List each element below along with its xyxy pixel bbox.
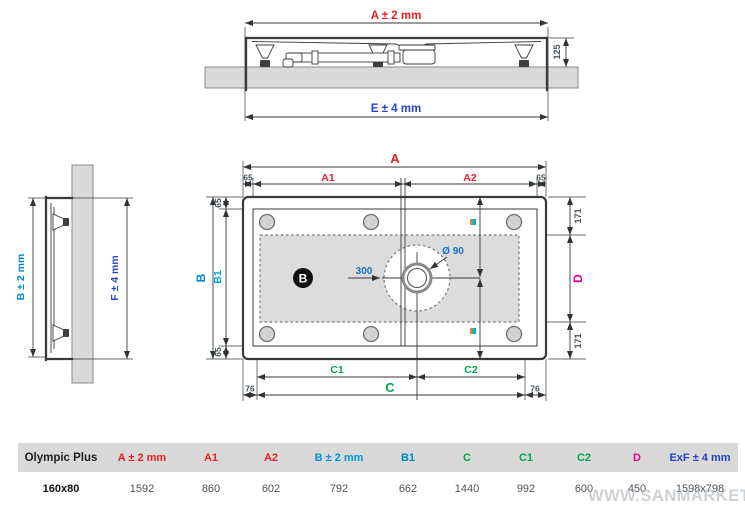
cell-b-value: 792 bbox=[300, 472, 378, 505]
plan-edge-171-bottom: 171 bbox=[573, 333, 583, 348]
side-dim-f-label: F ± 4 mm bbox=[109, 255, 121, 300]
elevation-dim-e-label: E ± 4 mm bbox=[371, 103, 421, 115]
plan-edge-65-left-bottom: 65 bbox=[213, 347, 223, 357]
drain-offset-label: 300 bbox=[356, 266, 373, 277]
cell-c1-value: 992 bbox=[496, 472, 556, 505]
plan-dim-c2-label: C2 bbox=[464, 364, 478, 376]
header-cell-product: Olympic Plus bbox=[18, 443, 104, 472]
header-cell-a: A ± 2 mm bbox=[104, 443, 180, 472]
elevation-view: A ± 2 mm 125 E ± 4 mm bbox=[205, 10, 578, 121]
foot-circle bbox=[364, 327, 379, 342]
header-cell-b: B ± 2 mm bbox=[300, 443, 378, 472]
plan-edge-65-top-left: 65 bbox=[243, 173, 253, 183]
plan-dim-d-label: D bbox=[571, 274, 585, 283]
drain-trap bbox=[399, 45, 435, 64]
plan-dim-b-label: B bbox=[194, 273, 208, 282]
plan-dim-c-label: C bbox=[385, 380, 395, 395]
plan-dim-a1-label: A1 bbox=[321, 172, 335, 184]
plan-edge-76-right: 76 bbox=[530, 384, 540, 394]
drain-diameter-label: Ø 90 bbox=[442, 246, 464, 257]
tray-leg bbox=[53, 214, 69, 230]
cell-c-value: 1440 bbox=[438, 472, 496, 505]
cell-a1-value: 860 bbox=[180, 472, 242, 505]
plan-dim-c1-label: C1 bbox=[330, 364, 344, 376]
side-dim-b-label: B ± 2 mm bbox=[15, 254, 27, 301]
plan-edge-65-top-right: 65 bbox=[536, 173, 546, 183]
cell-a-value: 1592 bbox=[104, 472, 180, 505]
floor-section bbox=[205, 67, 578, 88]
tray-leg bbox=[53, 325, 69, 341]
header-cell-c: C bbox=[438, 443, 496, 472]
equality-mark bbox=[470, 328, 476, 334]
header-cell-c2: C2 bbox=[556, 443, 612, 472]
equality-mark bbox=[470, 219, 476, 225]
elevation-dim-125-label: 125 bbox=[552, 44, 562, 59]
foot-circle bbox=[507, 215, 522, 230]
foot-circle bbox=[260, 215, 275, 230]
plan-edge-76-left: 76 bbox=[245, 384, 255, 394]
cell-a2-value: 602 bbox=[242, 472, 300, 505]
header-cell-a1: A1 bbox=[180, 443, 242, 472]
header-cell-a2: A2 bbox=[242, 443, 300, 472]
spec-sheet: A ± 2 mm 125 E ± 4 mm B ± 2 mm bbox=[0, 0, 745, 516]
cell-b1-value: 662 bbox=[378, 472, 438, 505]
table-header-row: Olympic Plus A ± 2 mm A1 A2 B ± 2 mm B1 … bbox=[18, 443, 738, 472]
header-cell-c1: C1 bbox=[496, 443, 556, 472]
tray-leg bbox=[515, 45, 533, 67]
plan-dim-a-label: A bbox=[390, 151, 400, 166]
side-view: B ± 2 mm F ± 4 mm bbox=[15, 165, 133, 383]
header-cell-d: D bbox=[612, 443, 662, 472]
elevation-dim-a-label: A ± 2 mm bbox=[371, 10, 422, 22]
tray-leg bbox=[256, 45, 274, 67]
foot-circle bbox=[507, 327, 522, 342]
plan-dim-b1-label: B1 bbox=[212, 270, 224, 284]
technical-drawing: A ± 2 mm 125 E ± 4 mm B ± 2 mm bbox=[0, 0, 745, 440]
plan-dim-a2-label: A2 bbox=[463, 172, 477, 184]
zone-b-badge-label: B bbox=[299, 272, 308, 286]
foot-circle bbox=[364, 215, 379, 230]
plan-edge-65-left-top: 65 bbox=[213, 198, 223, 208]
cell-size: 160x80 bbox=[18, 472, 104, 505]
plan-edge-171-top: 171 bbox=[573, 208, 583, 223]
header-cell-b1: B1 bbox=[378, 443, 438, 472]
watermark: WWW.SANMARKET.RU bbox=[588, 487, 745, 506]
plan-view: Ø 90 300 B A 65 A1 A2 65 B bbox=[194, 151, 586, 401]
header-cell-exf: ExF ± 4 mm bbox=[662, 443, 738, 472]
foot-circle bbox=[260, 327, 275, 342]
